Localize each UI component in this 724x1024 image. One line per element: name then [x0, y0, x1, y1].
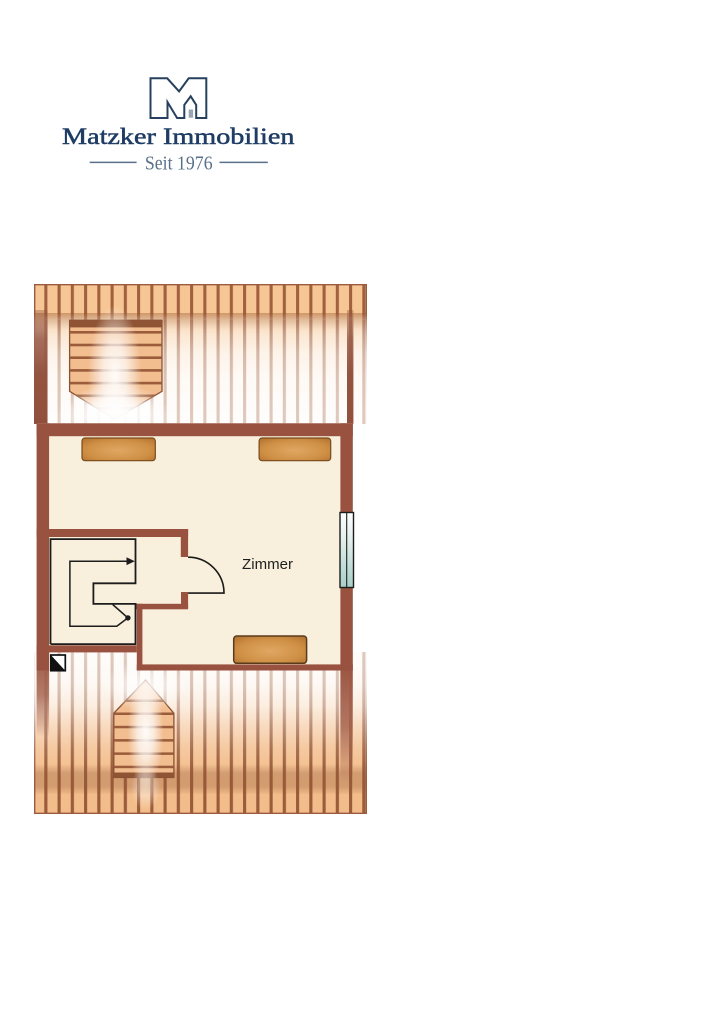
svg-text:Matzker Immobilien: Matzker Immobilien: [62, 124, 295, 149]
svg-text:Seit 1976: Seit 1976: [145, 153, 213, 174]
svg-text:Zimmer: Zimmer: [242, 556, 293, 573]
